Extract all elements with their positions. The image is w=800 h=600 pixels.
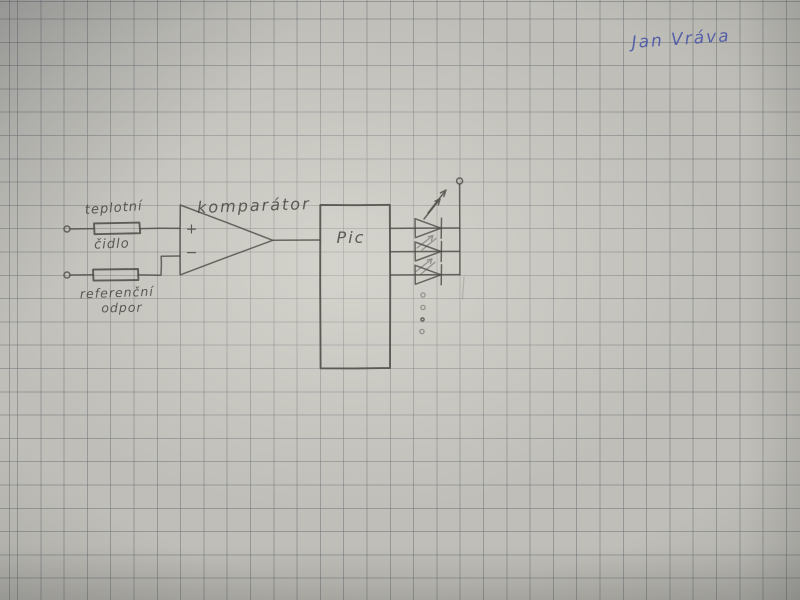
- ghost-line: [463, 277, 465, 299]
- label-sensor-line2: čidlo: [94, 236, 130, 252]
- led-array: [390, 178, 464, 334]
- ellipsis-dots: [420, 293, 425, 334]
- comparator-plus-input: +: [186, 222, 199, 238]
- label-mcu: Pic: [337, 228, 366, 247]
- label-sensor-line1: teplotní: [84, 199, 144, 218]
- supply-terminal: [457, 178, 463, 275]
- author-signature: Jan Vráva: [628, 26, 731, 53]
- comparator: + − komparátor: [180, 194, 320, 275]
- reference-resistor: referenční odpor: [80, 256, 180, 315]
- temperature-sensor-resistor: teplotní čidlo: [84, 199, 180, 253]
- microcontroller-block: Pic: [320, 205, 390, 369]
- input-terminal-bottom: [64, 272, 93, 278]
- input-terminal-top: [64, 226, 94, 232]
- label-comparator: komparátor: [197, 194, 311, 217]
- circuit-sketch: teplotní čidlo referenční odpor + − komp…: [0, 0, 800, 600]
- comparator-minus-input: −: [186, 245, 199, 261]
- led-emission-arrows-2: [417, 236, 436, 251]
- photo-of-schematic: teplotní čidlo referenční odpor + − komp…: [0, 0, 800, 600]
- led-emission-arrows-1: [424, 190, 446, 219]
- label-reference-line2: odpor: [101, 300, 143, 316]
- label-reference-line1: referenční: [80, 284, 155, 302]
